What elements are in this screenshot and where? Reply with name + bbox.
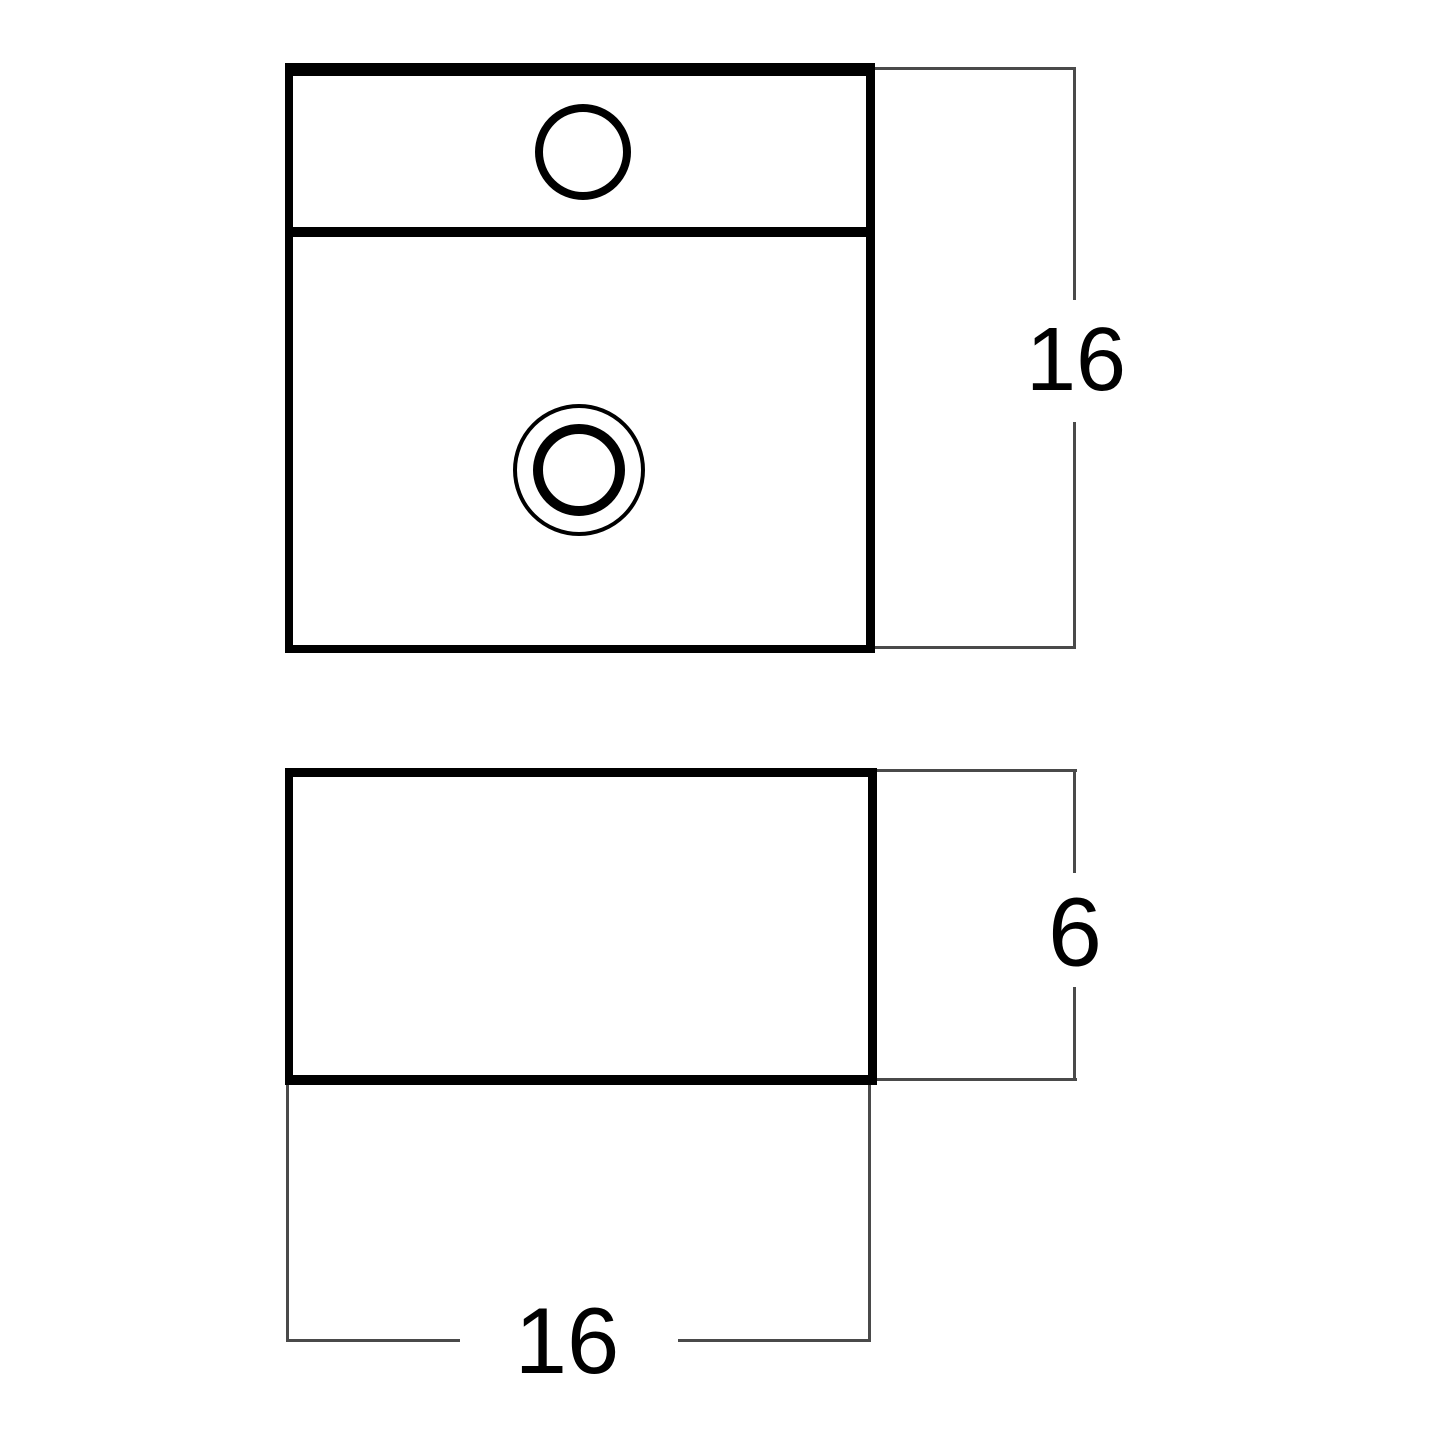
width-dimension-line-left <box>286 1339 460 1342</box>
front-view-outline <box>285 768 877 1085</box>
front-height-dimension-label: 6 <box>1048 884 1102 981</box>
plan-height-dimension-line-upper <box>1073 67 1076 300</box>
plan-height-dimension-tick-bottom <box>875 646 1076 649</box>
front-height-dimension-line-upper <box>1073 769 1076 873</box>
front-height-dimension-tick-top <box>877 769 1077 772</box>
width-dimension-extension-left <box>286 1085 289 1342</box>
plan-height-dimension-line-lower <box>1073 422 1076 649</box>
drain-inner-circle <box>533 424 625 516</box>
deck-divider-line <box>285 227 875 237</box>
front-height-dimension-line-lower <box>1073 987 1076 1081</box>
plan-height-dimension-label: 16 <box>1026 315 1126 405</box>
width-dimension-line-right <box>678 1339 870 1342</box>
diagram-canvas: 16 6 16 <box>0 0 1445 1445</box>
front-height-dimension-tick-bottom <box>877 1078 1077 1081</box>
plan-height-dimension-tick-top <box>875 67 1076 70</box>
faucet-hole-circle <box>535 104 631 200</box>
width-dimension-label: 16 <box>515 1294 620 1388</box>
width-dimension-extension-right <box>868 1085 871 1342</box>
